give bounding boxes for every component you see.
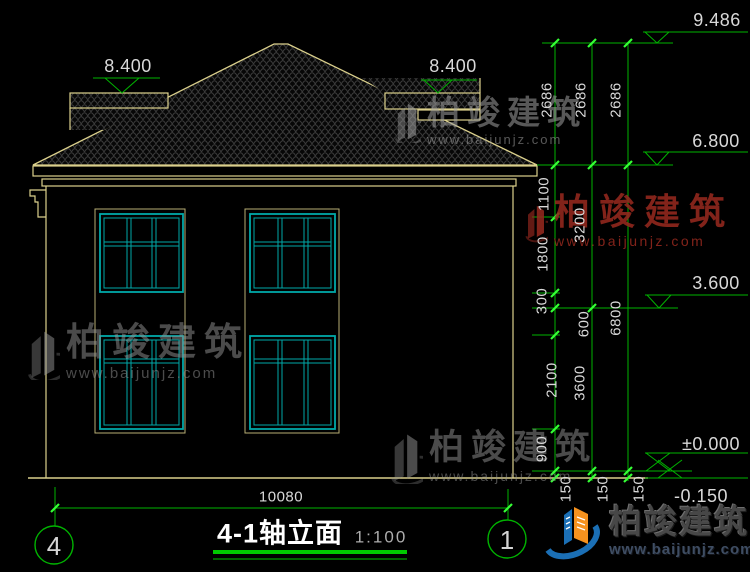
window-right-lower <box>250 336 335 429</box>
dim-inner-2100: 2100 <box>545 362 560 397</box>
dim-outer-6800: 6800 <box>609 300 624 335</box>
drawing-title: 4-1轴立面 <box>217 521 343 548</box>
axis-bubble-left: 4 <box>47 533 61 559</box>
right-wing-parapet <box>385 93 480 109</box>
dim-overall-width: 10080 <box>259 490 303 505</box>
cad-elevation-canvas: 柏竣建筑 www.baijunjz.com 柏竣建筑 www.baijunjz.… <box>0 0 750 572</box>
dim-outer-150: 150 <box>632 476 647 503</box>
windows <box>95 209 339 433</box>
dim-middle-3600: 3600 <box>573 365 588 400</box>
dim-inner-300: 300 <box>535 288 550 315</box>
window-left-lower <box>100 336 183 429</box>
dim-inner-600: 600 <box>577 311 592 338</box>
level-eave: 6.800 <box>692 132 740 150</box>
level-grade: -0.150 <box>674 487 728 505</box>
dim-inner-2686: 2686 <box>540 82 555 117</box>
window-right-upper <box>250 214 335 292</box>
left-wing-parapet <box>70 93 168 108</box>
dim-middle-150: 150 <box>596 476 611 503</box>
window-left-upper <box>100 214 183 292</box>
dim-inner-150: 150 <box>559 476 574 503</box>
level-left-wing: 8.400 <box>104 57 152 75</box>
wall-bracket <box>30 190 46 217</box>
window-openings <box>95 209 339 433</box>
level-ridge: 9.486 <box>693 11 741 29</box>
dim-outer-2686: 2686 <box>609 82 624 117</box>
dim-inner-1800: 1800 <box>536 236 551 271</box>
dim-inner-1100: 1100 <box>537 177 552 211</box>
dim-middle-2686: 2686 <box>574 82 589 117</box>
level-second-floor: 3.600 <box>692 274 740 292</box>
axis-bubble-right: 1 <box>500 527 514 553</box>
drawing-scale: 1:100 <box>355 529 408 546</box>
eave-fascia <box>33 166 537 186</box>
level-first-floor: ±0.000 <box>682 435 740 453</box>
level-right-wing: 8.400 <box>429 57 477 75</box>
title-underline <box>213 550 407 559</box>
dim-inner-900: 900 <box>535 436 550 463</box>
dim-middle-3200: 3200 <box>573 207 588 242</box>
